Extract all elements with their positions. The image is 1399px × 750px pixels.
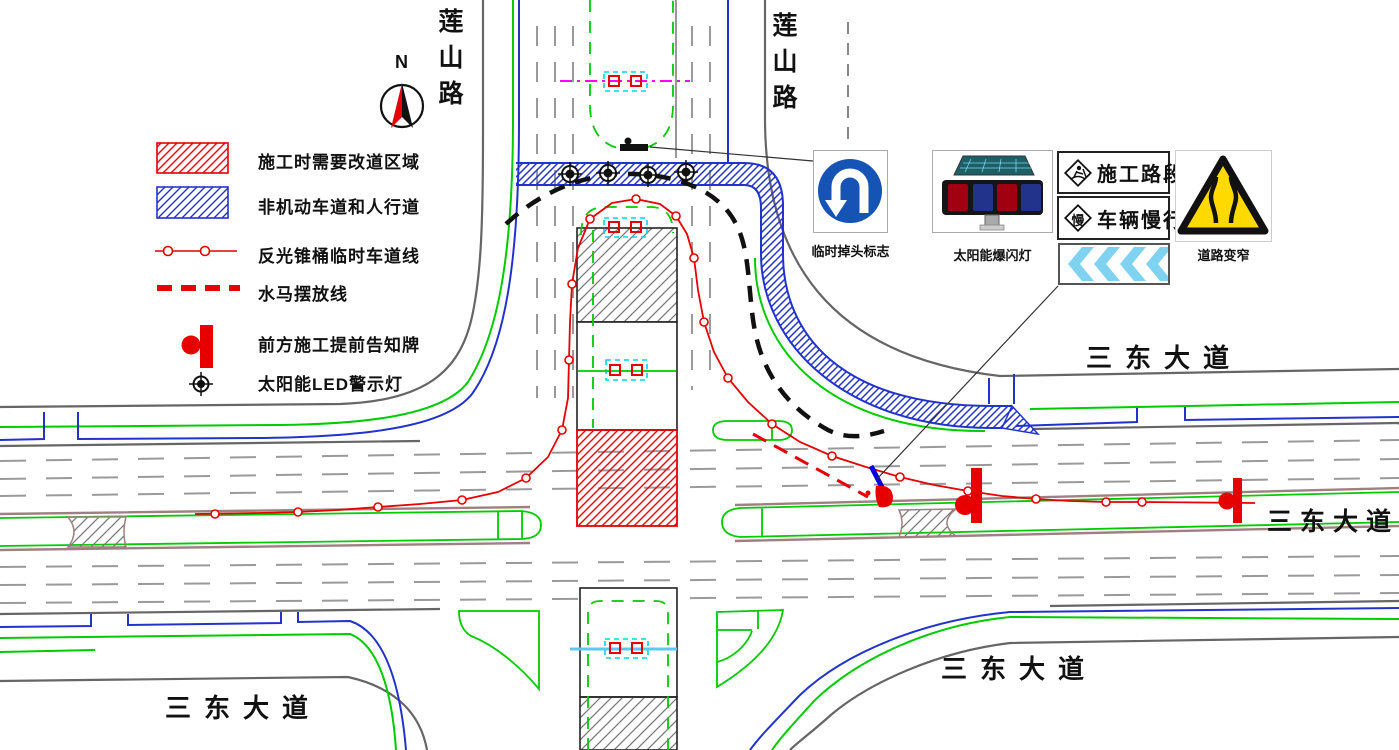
central-median-blocks bbox=[577, 228, 677, 750]
uturn-sign-caption: 临时掉头标志 bbox=[808, 241, 893, 260]
slow-diamond-text: 慢 bbox=[1063, 210, 1093, 229]
road-narrows-caption: 道路变窄 bbox=[1175, 245, 1272, 264]
construction-traffic-plan: N 莲山路 莲山路 三东大道 三东大道 三东大道 三东大道 施工时需要改道区域 … bbox=[0, 0, 1399, 750]
water-barrier-diagonal bbox=[753, 434, 868, 497]
chevron-direction-board bbox=[1058, 243, 1170, 285]
notice-sign-marker-angled bbox=[875, 486, 893, 508]
solar-strobe-caption: 太阳能爆闪灯 bbox=[932, 245, 1053, 264]
legend-blue-hatch-swatch bbox=[157, 187, 228, 218]
uturn-sign-icon bbox=[814, 151, 887, 232]
compass-north-label: N bbox=[395, 52, 408, 73]
road-plan-drawing bbox=[0, 0, 1399, 750]
legend-notice-sign-symbol bbox=[182, 325, 214, 368]
median-strip bbox=[0, 488, 1399, 550]
curb-lines bbox=[0, 0, 1399, 750]
construction-section-text: 施工路段 bbox=[1097, 158, 1185, 187]
legend-red-hatch-swatch bbox=[157, 143, 228, 173]
slow-diamond-icon: 慢 bbox=[1063, 203, 1093, 233]
legend-item-nonmotorized: 非机动车道和人行道 bbox=[258, 193, 420, 218]
legend-cone-line-symbol bbox=[155, 247, 237, 256]
construction-section-board: 施工路段 bbox=[1057, 151, 1170, 194]
legend-item-cone-line: 反光锥桶临时车道线 bbox=[258, 242, 420, 267]
legend-item-led-light: 太阳能LED警示灯 bbox=[258, 370, 403, 395]
road-label-sandong-northeast: 三东大道 bbox=[1086, 338, 1242, 375]
advance-notice-sign-marker-2 bbox=[1219, 478, 1243, 523]
blue-nonmotorized-lines bbox=[0, 0, 1399, 750]
green-edge-lines bbox=[0, 0, 1399, 750]
legend-item-detour-area: 施工时需要改道区域 bbox=[258, 148, 420, 173]
uturn-location-marker bbox=[620, 144, 648, 151]
legend-item-notice-sign: 前方施工提前告知牌 bbox=[258, 331, 420, 356]
legend-symbols bbox=[155, 143, 240, 396]
chevron-arrows-icon bbox=[1060, 245, 1168, 283]
road-label-sandong-southeast: 三东大道 bbox=[941, 649, 1097, 686]
construction-worker-icon bbox=[1063, 158, 1093, 188]
legend-item-water-barrier: 水马摆放线 bbox=[258, 280, 348, 305]
road-narrows-sign bbox=[1175, 150, 1272, 242]
uturn-sign bbox=[813, 150, 888, 233]
slow-down-text: 车辆慢行 bbox=[1097, 204, 1185, 233]
compass-north-arrow bbox=[381, 83, 423, 128]
legend-led-light-symbol bbox=[189, 372, 213, 396]
road-narrows-icon bbox=[1176, 151, 1271, 241]
slow-down-board: 慢 车辆慢行 bbox=[1057, 196, 1170, 240]
solar-strobe-light-image bbox=[933, 151, 1052, 232]
solar-strobe-light bbox=[932, 150, 1053, 233]
road-label-sandong-southwest: 三东大道 bbox=[165, 688, 321, 725]
road-label-sandong-east: 三东大道 bbox=[1267, 502, 1399, 538]
road-label-lianshan-west: 莲山路 bbox=[436, 8, 462, 116]
road-label-lianshan-east: 莲山路 bbox=[770, 12, 796, 120]
